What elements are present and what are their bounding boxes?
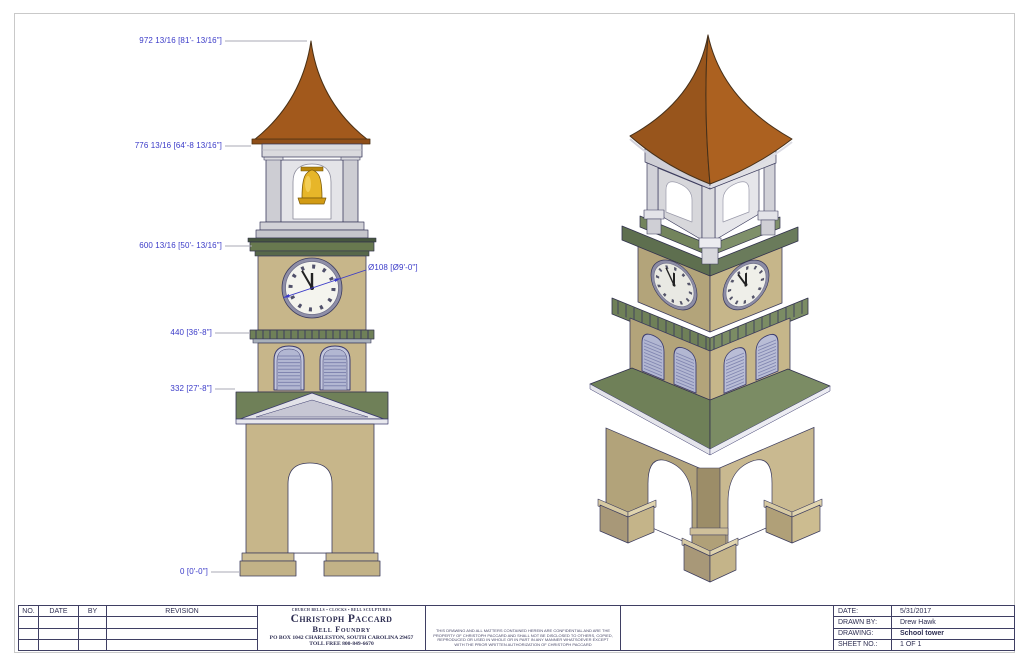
company-name2: Bell Foundry (312, 625, 370, 634)
front-roof-fascia (252, 139, 370, 144)
info-row-sheet-no: SHEET NO.: 1 OF 1 (834, 640, 1014, 650)
info-row-date: DATE: 5/31/2017 (834, 606, 1014, 617)
revision-empty-row (19, 629, 257, 640)
dimension-label-600: 600 13/16 [50'- 13/16"] (139, 241, 222, 250)
info-value-drawn-by: Drew Hawk (892, 617, 1014, 627)
iso-column-front (702, 186, 715, 242)
front-cornice-600 (248, 238, 376, 256)
info-value-sheet-no: 1 OF 1 (892, 640, 1014, 650)
title-block: NO. DATE BY REVISION CHURCH BELLS • CLOC… (18, 605, 1015, 651)
disclaimer-cell: THIS DRAWING AND ALL MATTERS CONTAINED H… (426, 606, 621, 650)
iso-column-right (764, 163, 775, 215)
dimension-label-0: 0 [0'-0"] (180, 567, 208, 576)
info-row-drawing: DRAWING: School tower (834, 629, 1014, 640)
front-belfry-column-right (343, 158, 358, 222)
front-louver-window-right (320, 346, 350, 390)
front-pediment (236, 392, 388, 424)
front-louver-window-left (274, 346, 304, 390)
dimension-label-440: 440 [36'-8"] (170, 328, 212, 337)
iso-column-left (647, 162, 658, 214)
info-label-drawing: DRAWING: (834, 629, 892, 639)
front-belfry-entablature (262, 144, 362, 157)
iso-roof-left-face (630, 35, 710, 184)
front-base-stage (240, 424, 380, 576)
revision-header-no: NO. (19, 606, 39, 616)
revision-header-date: DATE (39, 606, 79, 616)
revision-header-by: BY (79, 606, 107, 616)
drawing-info-block: DATE: 5/31/2017 DRAWN BY: Drew Hawk DRAW… (834, 606, 1014, 650)
revision-header-row: NO. DATE BY REVISION (19, 606, 257, 617)
revision-empty-row (19, 617, 257, 628)
drawing-sheet: { "dimensions": { "elevation_labels": [ … (0, 0, 1030, 666)
isometric-view (590, 35, 830, 582)
revision-header-revision: REVISION (107, 606, 257, 616)
company-block: CHURCH BELLS • CLOCKS • BELL SCULPTURES … (258, 606, 426, 650)
front-spire-roof (254, 41, 368, 140)
info-value-drawing: School tower (892, 629, 1014, 639)
dimension-label-clock-diameter: Ø108 [Ø9'-0"] (368, 263, 418, 272)
disclaimer-text: THIS DRAWING AND ALL MATTERS CONTAINED H… (426, 628, 620, 650)
dimension-label-972: 972 13/16 [81'- 13/16"] (139, 36, 222, 45)
empty-cell (621, 606, 834, 650)
iso-roof-right-face (706, 35, 792, 184)
info-label-sheet-no: SHEET NO.: (834, 640, 892, 650)
info-row-drawn-by: DRAWN BY: Drew Hawk (834, 617, 1014, 628)
info-label-date: DATE: (834, 606, 892, 616)
front-base-arch (288, 463, 332, 553)
front-cornice-440 (250, 330, 374, 343)
front-elevation-view (236, 41, 388, 576)
company-phone: TOLL FREE 800-849-6670 (309, 641, 374, 647)
dimension-label-776: 776 13/16 [64'-8 13/16"] (135, 141, 222, 150)
front-belfry-column-left (266, 158, 281, 222)
revision-empty-row (19, 640, 257, 650)
info-label-drawn-by: DRAWN BY: (834, 617, 892, 627)
dimension-label-332: 332 [27'-8"] (170, 384, 212, 393)
info-value-date: 5/31/2017 (892, 606, 1014, 616)
revision-table: NO. DATE BY REVISION (19, 606, 258, 650)
tower-drawing-canvas (0, 0, 1030, 666)
